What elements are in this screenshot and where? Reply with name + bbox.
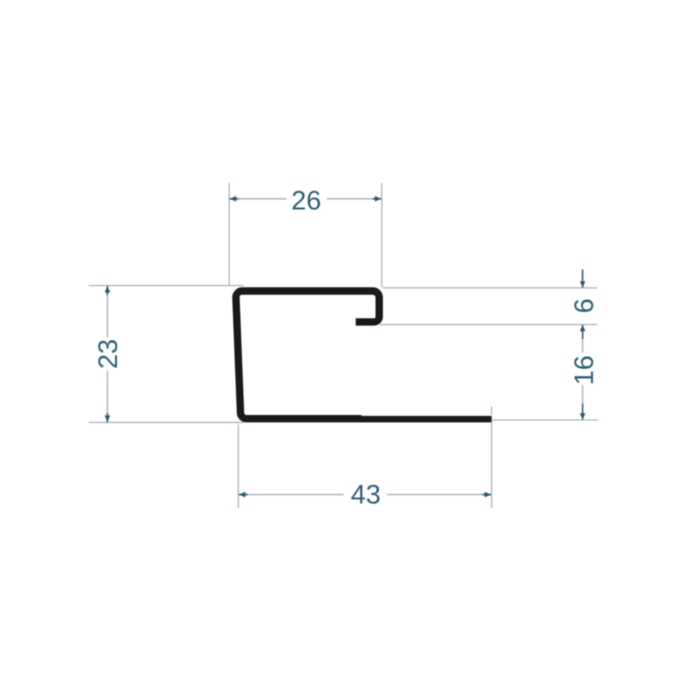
svg-text:43: 43 (351, 479, 381, 509)
svg-text:23: 23 (93, 339, 123, 369)
svg-text:6: 6 (569, 298, 599, 313)
svg-text:26: 26 (291, 185, 321, 215)
svg-text:16: 16 (569, 355, 599, 385)
